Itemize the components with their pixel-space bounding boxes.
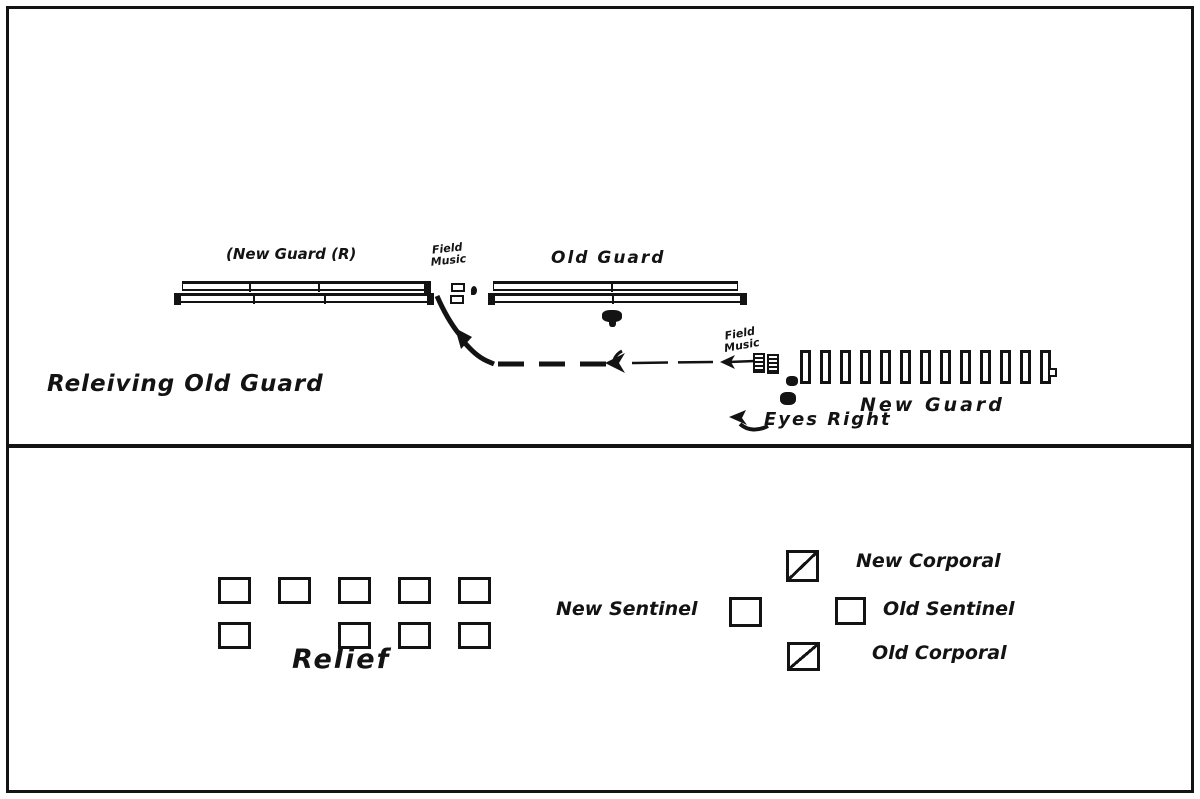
new-sentinel-label: New Sentinel <box>556 600 698 620</box>
new-guard-file-icon <box>980 350 991 384</box>
old-corporal-label: Old Corporal <box>872 644 1007 664</box>
old-corporal-square-icon <box>787 642 820 671</box>
relief-soldier-square-icon <box>458 622 491 649</box>
rank-end-marker <box>427 293 434 305</box>
relief-soldier-square-icon <box>278 577 311 604</box>
new-guard-file-icon <box>880 350 891 384</box>
drum-major-mark-icon <box>471 286 477 295</box>
march-route-arrowhead-left-icon <box>605 353 625 373</box>
relief-row <box>218 577 491 604</box>
field-music-right-label: Field Music <box>721 325 760 354</box>
march-route-curve-lower <box>464 342 494 364</box>
new-guard-file-icon <box>1000 350 1011 384</box>
panel-title: Releiving Old Guard <box>47 372 324 396</box>
field-music-arrow-line <box>729 361 755 362</box>
new-corporal-label: New Corporal <box>856 552 1001 572</box>
march-route-thin-line <box>632 362 713 363</box>
field-music-top-line2: Music <box>430 252 467 269</box>
new-guard-file-icon <box>800 350 811 384</box>
eyes-right-arrowhead-icon <box>729 410 747 425</box>
rank-end-marker <box>174 293 181 305</box>
relief-soldier-square-icon <box>218 622 251 649</box>
old-sentinel-square-icon <box>835 597 866 625</box>
relief-soldier-square-icon <box>338 577 371 604</box>
new-guard-file-icon <box>820 350 831 384</box>
guard-mount-diagram-page: Releiving Old Guard (New Guard (R) Field… <box>0 0 1200 799</box>
musician-icon <box>753 353 765 373</box>
relief-soldier-square-icon <box>218 577 251 604</box>
new-guard-file-icon <box>900 350 911 384</box>
rank-tick <box>611 282 613 292</box>
new-guard-file-icon <box>960 350 971 384</box>
field-music-rect-icon <box>451 283 465 292</box>
commander-blob-icon <box>780 392 796 405</box>
rank-tick <box>324 294 326 304</box>
rank-end-marker <box>488 293 495 305</box>
new-guard-file-icon <box>860 350 871 384</box>
new-guard-rank-bar-front <box>182 281 430 291</box>
new-guard-file-icon <box>840 350 851 384</box>
old-guard-label: Old Guard <box>551 250 665 268</box>
field-music-top-label: Field Music <box>429 241 467 268</box>
rank-tick <box>253 294 255 304</box>
old-guard-rank-bar-rear <box>489 293 746 303</box>
field-music-rect-icon <box>450 295 464 304</box>
eyes-right-label: Eyes Right <box>764 411 892 430</box>
relief-formation <box>218 577 491 649</box>
new-guard-line-label: (New Guard (R) <box>226 247 356 263</box>
rank-end-marker <box>424 281 431 293</box>
relief-soldier-square-icon <box>458 577 491 604</box>
new-guard-column <box>800 350 1051 384</box>
relieving-old-guard-panel: Releiving Old Guard (New Guard (R) Field… <box>7 7 1193 444</box>
arrow-curl <box>614 351 622 360</box>
rank-tick <box>612 294 614 304</box>
new-guard-file-icon <box>1020 350 1031 384</box>
rank-end-marker <box>740 293 747 305</box>
relief-soldier-square-icon <box>398 577 431 604</box>
new-guard-file-icon <box>1040 350 1051 384</box>
old-guard-commander-icon <box>609 319 616 327</box>
relief-label: Relief <box>292 646 390 674</box>
field-music-arrowhead-left-icon <box>720 355 735 369</box>
march-route-arrowhead-up-icon <box>455 328 472 349</box>
new-corporal-square-icon <box>786 550 819 582</box>
old-sentinel-label: Old Sentinel <box>883 600 1015 620</box>
guide-blob-icon <box>786 376 798 386</box>
rank-tick <box>249 282 251 292</box>
musician-icon <box>767 354 779 374</box>
old-guard-rank-bar-front <box>493 281 738 291</box>
column-end-marker <box>1048 368 1057 377</box>
rank-tick <box>318 282 320 292</box>
relief-soldier-square-icon <box>398 622 431 649</box>
relief-panel: Relief New Corporal New Sentinel Old Sen… <box>7 448 1193 792</box>
new-guard-file-icon <box>940 350 951 384</box>
new-sentinel-square-icon <box>729 597 762 627</box>
new-guard-rank-bar-rear <box>175 293 433 303</box>
new-guard-file-icon <box>920 350 931 384</box>
